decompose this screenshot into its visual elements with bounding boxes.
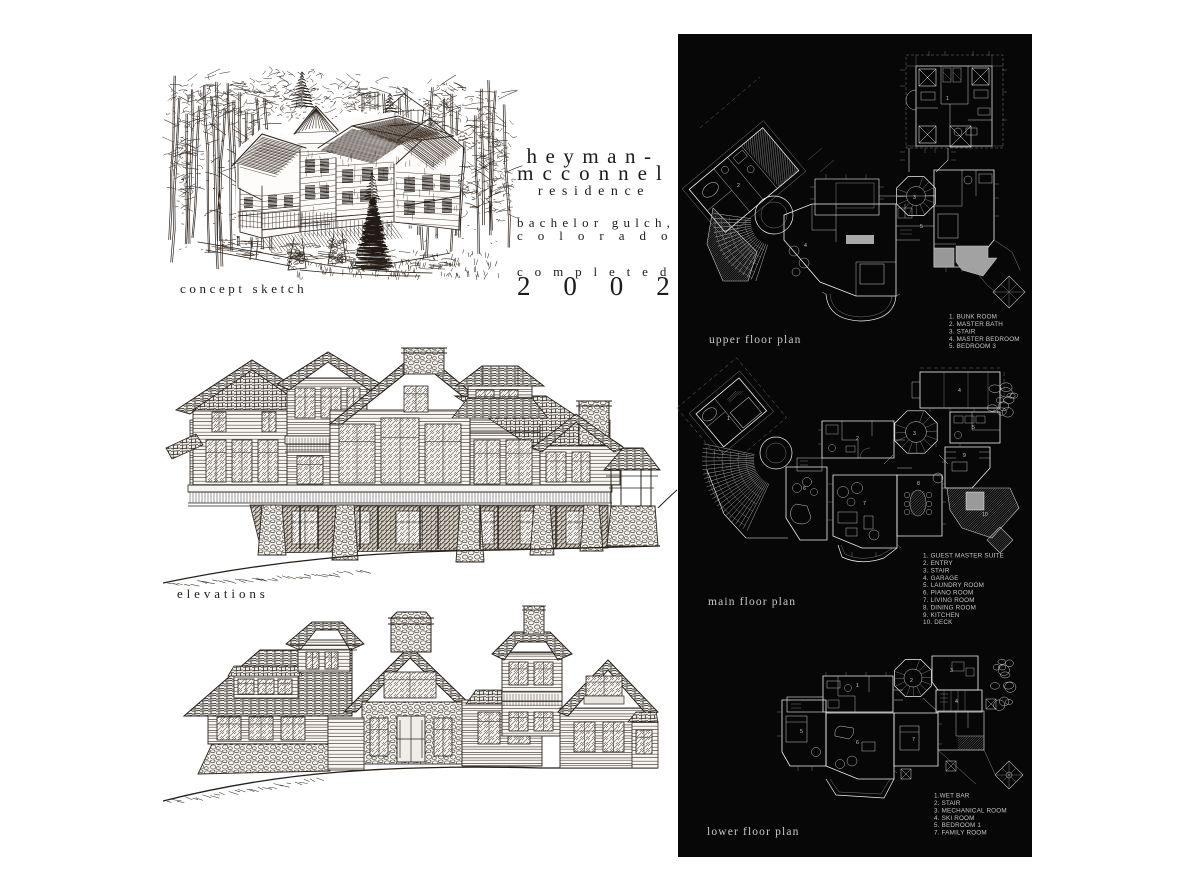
svg-text:main floor plan: main floor plan bbox=[708, 596, 796, 608]
svg-text:residence: residence bbox=[538, 184, 650, 199]
svg-text:3: 3 bbox=[913, 431, 916, 437]
svg-text:colorado: colorado bbox=[517, 228, 682, 243]
svg-text:7. FAMILY ROOM: 7. FAMILY ROOM bbox=[934, 830, 987, 837]
svg-text:1. GUEST MASTER SUITE: 1. GUEST MASTER SUITE bbox=[923, 553, 1004, 560]
svg-text:2. STAIR: 2. STAIR bbox=[934, 800, 961, 807]
svg-text:3: 3 bbox=[913, 195, 916, 201]
svg-text:5. BEDROOM 3: 5. BEDROOM 3 bbox=[949, 343, 996, 350]
svg-text:elevations: elevations bbox=[177, 586, 269, 601]
svg-text:4. SKI ROOM: 4. SKI ROOM bbox=[934, 815, 975, 822]
svg-text:1.WET BAR: 1.WET BAR bbox=[934, 793, 970, 800]
svg-text:7. LIVING ROOM: 7. LIVING ROOM bbox=[923, 597, 975, 604]
svg-text:5. LAUNDRY ROOM: 5. LAUNDRY ROOM bbox=[923, 582, 984, 589]
svg-text:8: 8 bbox=[917, 481, 920, 487]
svg-text:4: 4 bbox=[955, 699, 958, 705]
svg-text:2: 2 bbox=[856, 436, 859, 442]
svg-text:3. STAIR: 3. STAIR bbox=[923, 567, 950, 574]
svg-text:5. BEDROOM 1: 5. BEDROOM 1 bbox=[934, 822, 981, 829]
svg-text:4. MASTER BEDROOM: 4. MASTER BEDROOM bbox=[949, 336, 1020, 343]
svg-text:5: 5 bbox=[972, 425, 975, 431]
svg-text:7: 7 bbox=[863, 501, 866, 507]
svg-text:6. PIANO ROOM: 6. PIANO ROOM bbox=[923, 590, 973, 597]
svg-text:10. DECK: 10. DECK bbox=[923, 619, 953, 626]
svg-text:3. MECHANICAL ROOM: 3. MECHANICAL ROOM bbox=[934, 807, 1007, 814]
svg-text:mcconnel: mcconnel bbox=[517, 161, 671, 185]
svg-text:1: 1 bbox=[727, 416, 730, 422]
svg-text:10: 10 bbox=[982, 512, 988, 518]
svg-text:3: 3 bbox=[950, 668, 953, 674]
svg-text:9. KITCHEN: 9. KITCHEN bbox=[923, 612, 960, 619]
svg-text:4: 4 bbox=[958, 388, 961, 394]
svg-text:9: 9 bbox=[963, 453, 966, 459]
svg-text:2. ENTRY: 2. ENTRY bbox=[923, 560, 953, 567]
svg-text:concept sketch: concept sketch bbox=[180, 281, 307, 296]
svg-text:2: 2 bbox=[737, 183, 740, 189]
svg-text:2. MASTER BATH: 2. MASTER BATH bbox=[949, 321, 1003, 328]
svg-text:lower floor plan: lower floor plan bbox=[707, 826, 800, 838]
svg-text:7: 7 bbox=[912, 737, 915, 743]
svg-text:3. STAIR: 3. STAIR bbox=[949, 328, 976, 335]
svg-text:1: 1 bbox=[856, 683, 859, 689]
svg-text:upper floor plan: upper floor plan bbox=[709, 334, 802, 346]
svg-text:6: 6 bbox=[856, 740, 859, 746]
svg-text:4: 4 bbox=[804, 243, 807, 249]
svg-text:2: 2 bbox=[910, 678, 913, 684]
svg-text:5: 5 bbox=[800, 729, 803, 735]
svg-text:5: 5 bbox=[920, 224, 923, 230]
svg-text:1: 1 bbox=[946, 96, 949, 102]
svg-text:6: 6 bbox=[803, 486, 806, 492]
svg-text:2002: 2002 bbox=[517, 271, 703, 301]
svg-text:1. BUNK ROOM: 1. BUNK ROOM bbox=[949, 314, 997, 321]
svg-text:8. DINING ROOM: 8. DINING ROOM bbox=[923, 604, 976, 611]
svg-text:4. GARAGE: 4. GARAGE bbox=[923, 575, 959, 582]
